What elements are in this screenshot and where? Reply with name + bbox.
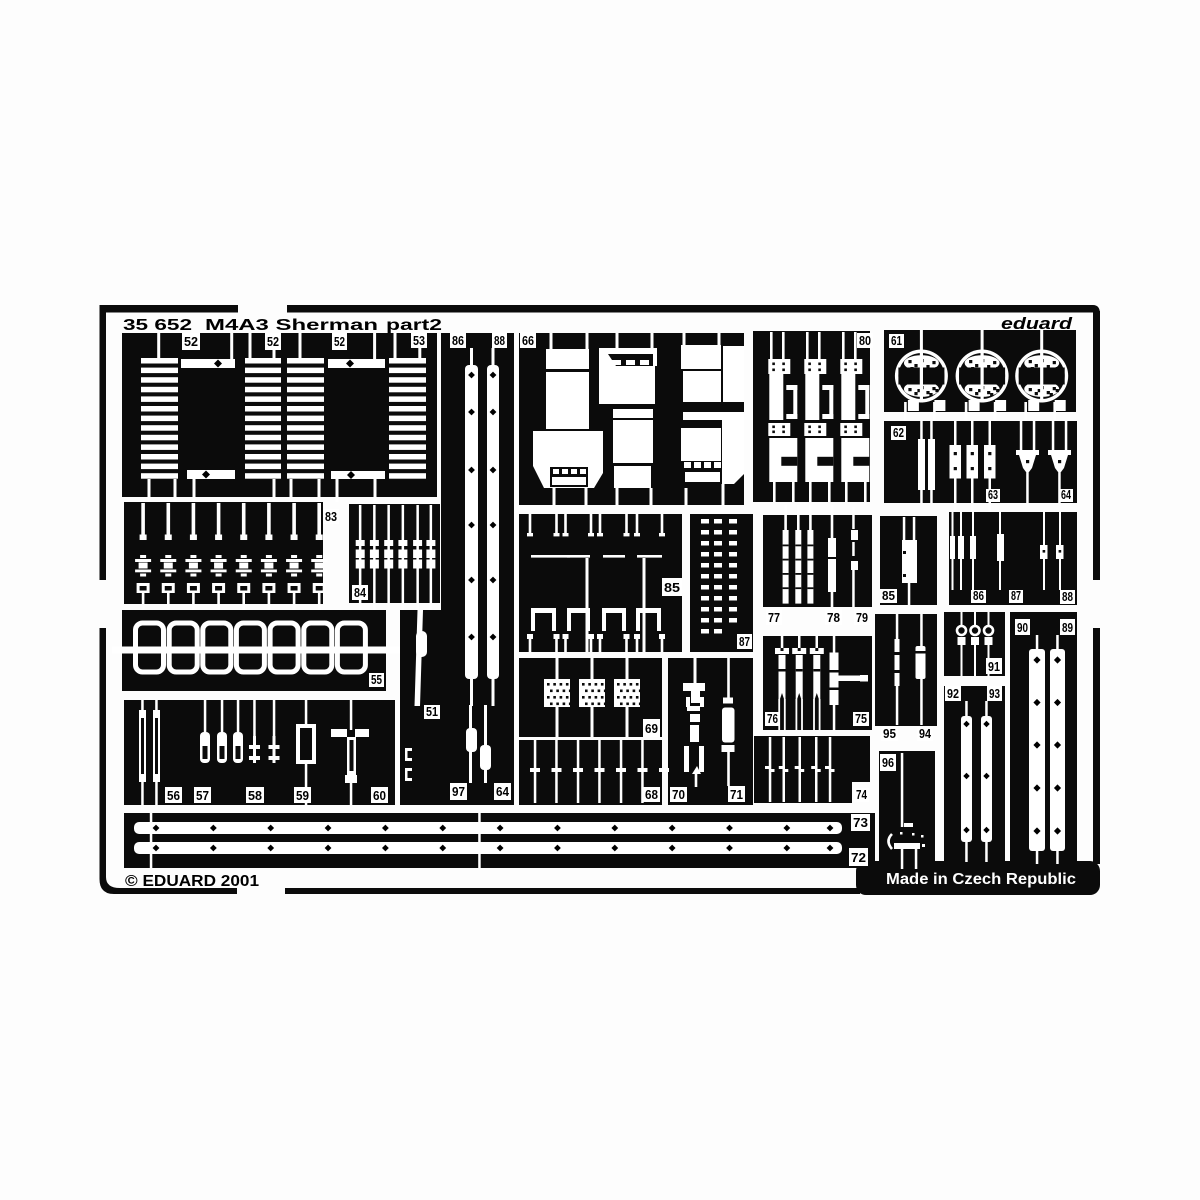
svg-text:80: 80 xyxy=(859,333,871,348)
svg-text:94: 94 xyxy=(919,726,932,741)
svg-text:61: 61 xyxy=(891,333,902,348)
svg-text:59: 59 xyxy=(296,788,309,803)
svg-text:35 652: 35 652 xyxy=(123,317,192,334)
svg-text:53: 53 xyxy=(413,333,425,348)
svg-text:84: 84 xyxy=(354,585,367,600)
svg-text:74: 74 xyxy=(856,787,868,802)
svg-text:86: 86 xyxy=(973,588,984,603)
svg-text:88: 88 xyxy=(1062,589,1073,604)
svg-text:96: 96 xyxy=(882,755,894,770)
svg-text:78: 78 xyxy=(827,610,840,625)
svg-text:97: 97 xyxy=(452,784,465,799)
svg-text:58: 58 xyxy=(248,788,262,803)
svg-text:part2: part2 xyxy=(386,317,442,334)
svg-text:89: 89 xyxy=(1062,620,1073,635)
svg-text:75: 75 xyxy=(855,711,867,726)
svg-text:70: 70 xyxy=(672,787,685,802)
svg-text:68: 68 xyxy=(645,787,658,802)
svg-text:76: 76 xyxy=(767,711,778,726)
svg-text:51: 51 xyxy=(426,704,438,719)
svg-text:62: 62 xyxy=(893,425,904,440)
svg-text:64: 64 xyxy=(1061,487,1072,502)
svg-text:72: 72 xyxy=(851,850,866,865)
svg-text:88: 88 xyxy=(494,333,505,348)
svg-text:90: 90 xyxy=(1017,620,1028,635)
svg-text:55: 55 xyxy=(371,672,382,687)
svg-text:87: 87 xyxy=(739,634,750,649)
svg-text:73: 73 xyxy=(853,815,868,830)
svg-text:91: 91 xyxy=(988,659,1000,674)
svg-text:83: 83 xyxy=(325,509,337,524)
svg-text:77: 77 xyxy=(768,610,780,625)
svg-text:71: 71 xyxy=(730,787,743,802)
svg-text:M4A3 Sherman: M4A3 Sherman xyxy=(205,317,378,334)
svg-text:64: 64 xyxy=(496,784,510,799)
svg-text:92: 92 xyxy=(947,686,959,701)
svg-text:52: 52 xyxy=(334,334,345,349)
svg-text:85: 85 xyxy=(882,588,895,603)
svg-text:56: 56 xyxy=(167,788,180,803)
svg-text:60: 60 xyxy=(373,788,386,803)
svg-text:87: 87 xyxy=(1011,588,1021,603)
svg-text:63: 63 xyxy=(988,487,998,502)
svg-text:52: 52 xyxy=(267,334,279,349)
svg-text:79: 79 xyxy=(856,610,868,625)
svg-text:52: 52 xyxy=(184,334,198,349)
svg-text:93: 93 xyxy=(989,686,1000,701)
svg-text:© EDUARD 2001: © EDUARD 2001 xyxy=(125,873,259,890)
svg-text:86: 86 xyxy=(452,333,464,348)
svg-text:85: 85 xyxy=(664,580,680,595)
svg-text:95: 95 xyxy=(883,726,896,741)
svg-text:Made in Czech Republic: Made in Czech Republic xyxy=(886,871,1076,888)
svg-text:66: 66 xyxy=(522,333,534,348)
svg-text:69: 69 xyxy=(645,721,658,736)
svg-text:57: 57 xyxy=(196,788,209,803)
